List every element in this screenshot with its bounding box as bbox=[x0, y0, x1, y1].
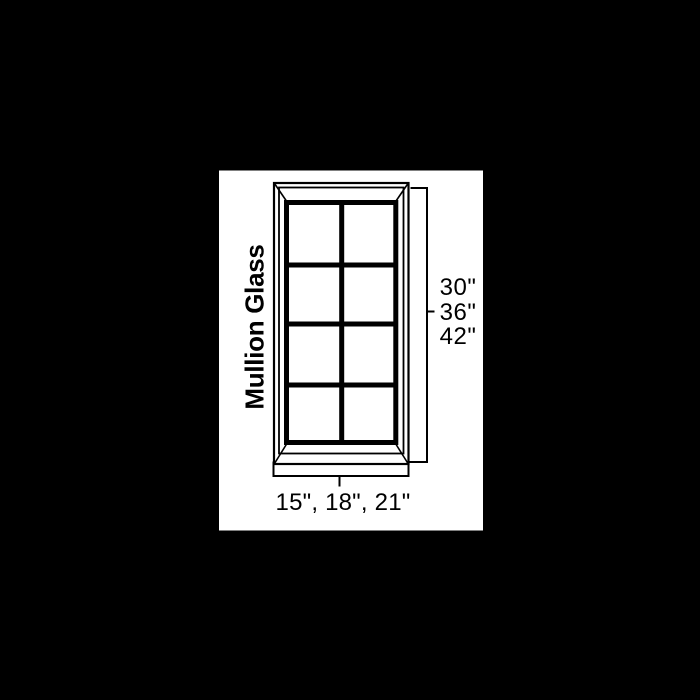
page-background: { "colors": { "background": "#000000", "… bbox=[0, 0, 700, 700]
width-options: 15", 18", 21" bbox=[276, 489, 411, 517]
diagram-title: Mullion Glass bbox=[240, 244, 271, 409]
height-option-30: 30" bbox=[427, 276, 489, 301]
diagram-stage: Mullion Glass 30" 36" 42" 15", 18", 21" bbox=[0, 0, 700, 700]
height-options: 30" 36" 42" bbox=[427, 276, 489, 350]
height-option-36: 36" bbox=[427, 301, 489, 326]
mullion-glass-door-diagram bbox=[0, 0, 700, 700]
height-option-42: 42" bbox=[427, 325, 489, 350]
